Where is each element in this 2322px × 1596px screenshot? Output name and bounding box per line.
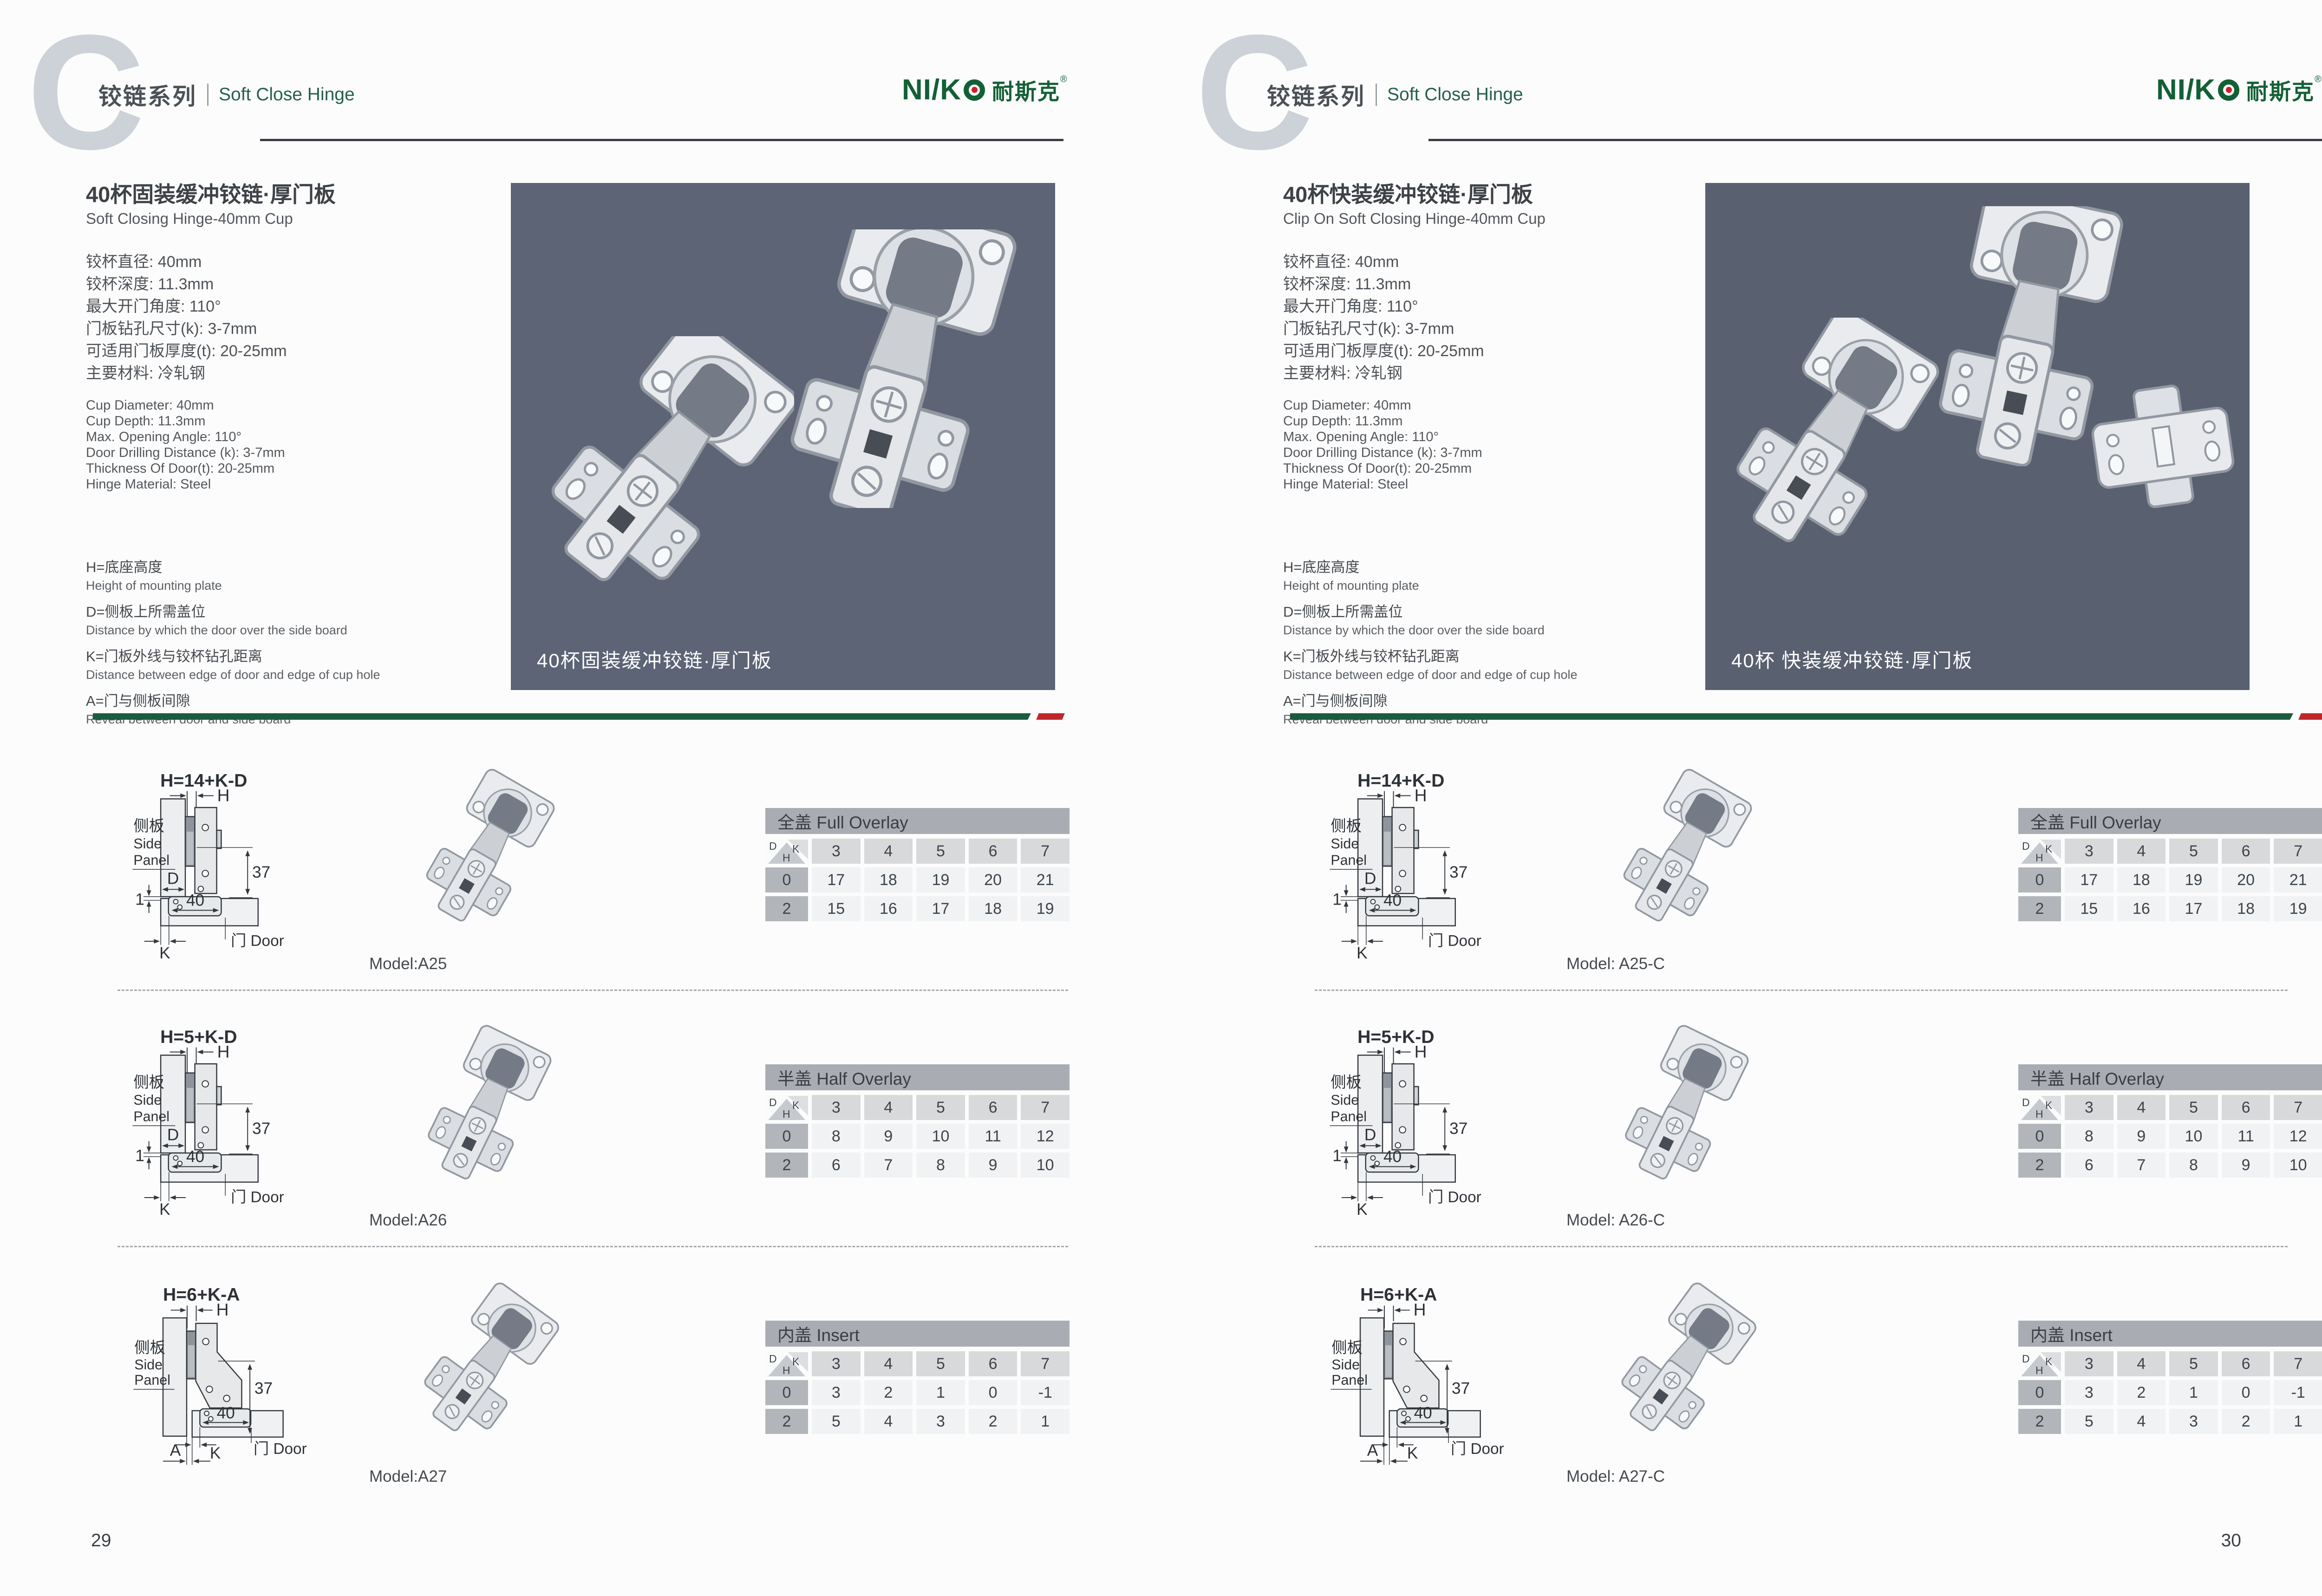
brand-o-icon xyxy=(2218,79,2239,101)
spec-list-en: Cup Diameter: 40mmCup Depth: 11.3mmMax. … xyxy=(86,397,285,492)
brand-logo-latin: NI/K xyxy=(902,73,961,106)
technical-diagram-insert: H=6+K-AH侧板SidePanel4037KA门 Door xyxy=(1313,1276,1541,1476)
table-title: 全盖 Full Overlay xyxy=(2018,808,2322,834)
table-corner-cell: D K H xyxy=(765,1351,808,1376)
svg-text:侧板: 侧板 xyxy=(133,1074,164,1091)
brand-logo-cn: 耐斯克 xyxy=(992,74,1060,106)
product-photo-art xyxy=(1705,183,2250,690)
k-value-header: 5 xyxy=(916,839,965,864)
hinge-illustration xyxy=(382,1012,591,1207)
hinge-section-diagram: H=5+K-DH侧板SidePanel37D140K门 Door xyxy=(116,1019,344,1219)
overlay-value-cell: 18 xyxy=(864,867,913,892)
spec-list-cn: 铰杯直径: 40mm铰杯深度: 11.3mm最大开门角度: 110°门板钻孔尺寸… xyxy=(1283,251,1484,384)
overlay-value-cell: 8 xyxy=(2065,1124,2113,1149)
svg-text:37: 37 xyxy=(1449,863,1468,881)
svg-text:D: D xyxy=(2022,1353,2030,1365)
legend-term: D=侧板上所需盖位 xyxy=(1283,600,1577,621)
svg-text:侧板: 侧板 xyxy=(1331,818,1362,835)
overlay-value-cell: 1 xyxy=(916,1380,965,1405)
table-grid: D K H 345670171819202121516171819 xyxy=(765,839,1070,921)
svg-text:D: D xyxy=(769,840,777,852)
product-photo-panel: 40杯固装缓冲铰链·厚门板 xyxy=(511,183,1055,690)
overlay-value-cell: 6 xyxy=(2065,1153,2113,1178)
overlay-value-cell: 0 xyxy=(2222,1380,2270,1405)
spec-line: Cup Diameter: 40mm xyxy=(86,397,285,413)
k-value-header: 3 xyxy=(2065,1351,2113,1376)
overlay-value-cell: 15 xyxy=(2065,896,2113,921)
technical-diagram-full-overlay: H=14+K-DH侧板SidePanel37D140K门 Door xyxy=(116,763,344,963)
spec-line: 最大开门角度: 110° xyxy=(86,295,287,318)
svg-text:H: H xyxy=(217,1042,230,1061)
svg-text:H: H xyxy=(783,1364,790,1376)
k-value-header: 4 xyxy=(2117,1351,2166,1376)
corner-diagonal-icon: D K H xyxy=(2018,839,2061,864)
series-title-en: Soft Close Hinge xyxy=(219,85,355,105)
svg-text:Side: Side xyxy=(1331,836,1359,852)
h-value-header: 0 xyxy=(765,1124,808,1149)
table-corner-cell: D K H xyxy=(2018,1351,2061,1376)
registered-mark: ® xyxy=(1060,74,1067,85)
overlay-value-cell: -1 xyxy=(1021,1380,1070,1405)
table-title: 半盖 Half Overlay xyxy=(2018,1064,2322,1090)
overlay-value-cell: 6 xyxy=(812,1153,861,1178)
k-value-header: 6 xyxy=(969,1351,1018,1376)
product-title-en: Soft Closing Hinge-40mm Cup xyxy=(86,210,293,228)
svg-text:Panel: Panel xyxy=(133,1109,170,1124)
overlay-value-cell: 3 xyxy=(916,1409,965,1434)
svg-text:侧板: 侧板 xyxy=(1331,1074,1362,1091)
table-corner-cell: D K H xyxy=(765,1095,808,1120)
h-value-header: 2 xyxy=(765,1153,808,1178)
svg-text:D: D xyxy=(167,1126,179,1144)
overlay-value-cell: 7 xyxy=(864,1153,913,1178)
h-value-header: 0 xyxy=(765,867,808,892)
spec-line: 铰杯直径: 40mm xyxy=(1283,251,1484,273)
overlay-value-cell: 17 xyxy=(2065,867,2113,892)
technical-diagram-insert: H=6+K-AH侧板SidePanel4037KA门 Door xyxy=(116,1276,344,1476)
k-value-header: 3 xyxy=(2065,1095,2113,1120)
brand-dot-icon xyxy=(972,87,978,93)
hinge-product-photo xyxy=(382,756,591,951)
legend-desc: Distance by which the door over the side… xyxy=(1283,623,1577,638)
hinge-illustration xyxy=(1579,1269,1788,1464)
header-rule xyxy=(260,139,1063,141)
product-photo-panel: 40杯 快装缓冲铰链·厚门板 xyxy=(1705,183,2250,690)
model-label: Model:A27 xyxy=(369,1467,447,1486)
svg-text:37: 37 xyxy=(252,863,270,881)
svg-text:侧板: 侧板 xyxy=(1331,1340,1363,1357)
overlay-value-cell: 2 xyxy=(864,1380,913,1405)
k-value-header: 5 xyxy=(916,1351,965,1376)
table-title: 内盖 Insert xyxy=(2018,1321,2322,1347)
half-overlay-table: 半盖 Half Overlay D K H 345670891011122678… xyxy=(2018,1064,2322,1178)
series-divider xyxy=(1376,84,1377,106)
table-corner-cell: D K H xyxy=(2018,1095,2061,1120)
svg-text:Panel: Panel xyxy=(133,853,170,868)
hinge-product-photo xyxy=(382,1012,591,1207)
overlay-value-cell: 18 xyxy=(2222,896,2270,921)
table-grid: D K H 3456703210-1254321 xyxy=(765,1351,1070,1434)
overlay-value-cell: 9 xyxy=(2222,1153,2270,1178)
svg-text:D: D xyxy=(769,1353,777,1365)
svg-text:门 Door: 门 Door xyxy=(231,932,284,950)
overlay-value-cell: 9 xyxy=(2117,1124,2166,1149)
spec-line: Max. Opening Angle: 110° xyxy=(1283,429,1482,445)
spec-line: Door Drilling Distance (k): 3-7mm xyxy=(1283,445,1482,461)
separator-green-bar xyxy=(93,713,1031,720)
h-value-header: 2 xyxy=(765,896,808,921)
overlay-value-cell: 7 xyxy=(2117,1153,2166,1178)
hinge-illustration xyxy=(1579,756,1788,951)
hinge-product-photo xyxy=(382,1269,591,1464)
spec-line: Thickness Of Door(t): 20-25mm xyxy=(86,461,285,476)
brand-logo: NI/K 耐斯克 ® xyxy=(902,73,1067,106)
svg-text:A: A xyxy=(170,1441,181,1459)
series-header: 铰链系列 Soft Close Hinge xyxy=(1267,78,1523,111)
series-title-en: Soft Close Hinge xyxy=(1387,85,1523,105)
overlay-value-cell: 12 xyxy=(1021,1124,1070,1149)
svg-text:K: K xyxy=(1407,1444,1418,1462)
k-value-header: 7 xyxy=(2274,1351,2322,1376)
overlay-value-cell: 2 xyxy=(2117,1380,2166,1405)
spec-line: 门板钻孔尺寸(k): 3-7mm xyxy=(86,318,287,340)
spec-line: Door Drilling Distance (k): 3-7mm xyxy=(86,445,285,461)
svg-text:1: 1 xyxy=(135,891,144,909)
overlay-value-cell: 10 xyxy=(2274,1153,2322,1178)
k-value-header: 5 xyxy=(2169,839,2218,864)
svg-text:K: K xyxy=(1357,944,1368,962)
svg-text:K: K xyxy=(1357,1200,1368,1218)
hinge-section-diagram: H=6+K-AH侧板SidePanel4037KA门 Door xyxy=(1313,1276,1541,1476)
overlay-value-cell: 3 xyxy=(2169,1409,2218,1434)
overlay-value-cell: 11 xyxy=(2222,1124,2270,1149)
spec-line: 主要材料: 冷轧钢 xyxy=(86,362,287,384)
legend-term: A=门与侧板间隙 xyxy=(86,689,380,710)
k-value-header: 5 xyxy=(2169,1351,2218,1376)
overlay-value-cell: 16 xyxy=(2117,896,2166,921)
registered-mark: ® xyxy=(2315,74,2322,85)
svg-text:40: 40 xyxy=(1414,1404,1432,1422)
model-label: Model: A25-C xyxy=(1566,955,1665,973)
svg-text:H=14+K-D: H=14+K-D xyxy=(1357,771,1444,791)
separator-green-bar xyxy=(1290,713,2293,720)
product-photo-art xyxy=(511,183,1055,690)
legend-term: H=底座高度 xyxy=(1283,555,1577,576)
svg-text:Panel: Panel xyxy=(1331,1109,1367,1124)
overlay-value-cell: 2 xyxy=(969,1409,1018,1434)
spec-line: Hinge Material: Steel xyxy=(1283,476,1482,492)
catalog-page-30: C 铰链系列 Soft Close Hinge NI/K 耐斯克 ® 40杯快装… xyxy=(1168,0,2322,1596)
k-value-header: 3 xyxy=(812,1095,861,1120)
svg-text:37: 37 xyxy=(1449,1120,1468,1138)
table-corner-cell: D K H xyxy=(2018,839,2061,864)
overlay-value-cell: 17 xyxy=(812,867,861,892)
legend-desc: Distance between edge of door and edge o… xyxy=(86,668,380,682)
svg-text:1: 1 xyxy=(1332,891,1342,909)
k-value-header: 6 xyxy=(969,1095,1018,1120)
k-value-header: 7 xyxy=(2274,1095,2322,1120)
row-divider xyxy=(1315,990,2288,991)
brand-o-icon xyxy=(964,79,985,101)
k-value-header: 7 xyxy=(1021,839,1070,864)
svg-text:37: 37 xyxy=(254,1380,273,1398)
spec-line: 铰杯深度: 11.3mm xyxy=(86,273,287,295)
hinge-section-diagram: H=5+K-DH侧板SidePanel37D140K门 Door xyxy=(1313,1019,1541,1219)
overlay-value-cell: 4 xyxy=(864,1409,913,1434)
brand-logo: NI/K 耐斯克 ® xyxy=(2156,73,2322,106)
svg-text:门 Door: 门 Door xyxy=(1451,1440,1504,1458)
page-number: 29 xyxy=(91,1531,111,1551)
spec-line: Cup Diameter: 40mm xyxy=(1283,397,1482,413)
h-value-header: 0 xyxy=(2018,1124,2061,1149)
svg-text:D: D xyxy=(1364,870,1376,888)
svg-text:Panel: Panel xyxy=(1331,1373,1368,1388)
k-value-header: 3 xyxy=(2065,839,2113,864)
spec-line: Hinge Material: Steel xyxy=(86,476,285,492)
legend-desc: Distance by which the door over the side… xyxy=(86,623,380,638)
table-title: 内盖 Insert xyxy=(765,1321,1070,1347)
spec-line: 铰杯深度: 11.3mm xyxy=(1283,273,1484,295)
corner-diagonal-icon: D K H xyxy=(2018,1351,2061,1376)
spec-line: Cup Depth: 11.3mm xyxy=(1283,413,1482,429)
k-value-header: 3 xyxy=(812,839,861,864)
model-label: Model:A25 xyxy=(369,955,447,973)
svg-text:40: 40 xyxy=(1383,892,1402,910)
insert-table: 内盖 Insert D K H 3456703210-1254321 xyxy=(765,1321,1070,1434)
k-value-header: 4 xyxy=(864,1351,913,1376)
overlay-value-cell: 19 xyxy=(1021,896,1070,921)
technical-diagram-half-overlay: H=5+K-DH侧板SidePanel37D140K门 Door xyxy=(1313,1019,1541,1219)
k-value-header: 5 xyxy=(2169,1095,2218,1120)
overlay-value-cell: 0 xyxy=(969,1380,1018,1405)
brand-dot-icon xyxy=(2226,87,2232,93)
h-value-header: 0 xyxy=(765,1380,808,1405)
half-overlay-table: 半盖 Half Overlay D K H 345670891011122678… xyxy=(765,1064,1070,1178)
svg-text:K: K xyxy=(792,1099,800,1111)
svg-text:K: K xyxy=(2045,1099,2053,1111)
legend-term: D=侧板上所需盖位 xyxy=(86,600,380,621)
svg-text:门 Door: 门 Door xyxy=(1428,932,1481,950)
overlay-value-cell: -1 xyxy=(2274,1380,2322,1405)
svg-text:1: 1 xyxy=(1332,1147,1342,1165)
technical-diagram-half-overlay: H=5+K-DH侧板SidePanel37D140K门 Door xyxy=(116,1019,344,1219)
svg-text:H: H xyxy=(2035,1364,2043,1376)
product-title-cn: 40杯快装缓冲铰链·厚门板 xyxy=(1283,176,1533,208)
overlay-value-cell: 4 xyxy=(2117,1409,2166,1434)
legend-term: K=门板外线与铰杯钻孔距离 xyxy=(1283,645,1577,665)
overlay-value-cell: 9 xyxy=(969,1153,1018,1178)
hinge-section-diagram: H=14+K-DH侧板SidePanel37D140K门 Door xyxy=(1313,763,1541,963)
photo-caption: 40杯固装缓冲铰链·厚门板 xyxy=(537,645,772,673)
svg-text:D: D xyxy=(2022,1096,2030,1108)
soft-close-hinge-photo xyxy=(534,336,794,596)
svg-text:H=14+K-D: H=14+K-D xyxy=(160,771,247,791)
header-rule xyxy=(1428,139,2322,141)
svg-text:K: K xyxy=(792,1355,800,1368)
overlay-value-cell: 10 xyxy=(2169,1124,2218,1149)
legend-desc: Height of mounting plate xyxy=(1283,579,1577,593)
spec-line: 最大开门角度: 110° xyxy=(1283,295,1484,318)
k-value-header: 4 xyxy=(2117,839,2166,864)
svg-text:H: H xyxy=(1415,1042,1427,1061)
svg-text:K: K xyxy=(159,1200,170,1218)
svg-text:侧板: 侧板 xyxy=(134,1340,165,1357)
k-value-header: 6 xyxy=(2222,1095,2270,1120)
svg-text:Side: Side xyxy=(1331,1357,1360,1373)
svg-text:K: K xyxy=(2045,843,2053,855)
overlay-value-cell: 20 xyxy=(2222,867,2270,892)
svg-text:1: 1 xyxy=(135,1147,144,1165)
full-overlay-table: 全盖 Full Overlay D K H 345670171819202121… xyxy=(765,808,1070,921)
spec-line: 门板钻孔尺寸(k): 3-7mm xyxy=(1283,318,1484,340)
hinge-product-photo xyxy=(1579,1269,1788,1464)
h-value-header: 2 xyxy=(2018,1153,2061,1178)
overlay-value-cell: 1 xyxy=(1021,1409,1070,1434)
spec-list-en: Cup Diameter: 40mmCup Depth: 11.3mmMax. … xyxy=(1283,397,1482,492)
overlay-value-cell: 16 xyxy=(864,896,913,921)
page-number: 30 xyxy=(2221,1531,2241,1551)
hinge-section-diagram: H=14+K-DH侧板SidePanel37D140K门 Door xyxy=(116,763,344,963)
svg-text:40: 40 xyxy=(1383,1148,1402,1166)
spec-line: 主要材料: 冷轧钢 xyxy=(1283,362,1484,384)
separator-red-bar xyxy=(2298,713,2322,720)
svg-text:门 Door: 门 Door xyxy=(254,1440,307,1458)
k-value-header: 6 xyxy=(2222,1351,2270,1376)
svg-text:37: 37 xyxy=(252,1120,270,1138)
overlay-value-cell: 12 xyxy=(2274,1124,2322,1149)
hinge-section-diagram: H=6+K-AH侧板SidePanel4037KA门 Door xyxy=(116,1276,344,1476)
row-divider xyxy=(117,990,1068,991)
corner-diagonal-icon: D K H xyxy=(2018,1095,2061,1120)
hinge-product-photo xyxy=(1579,756,1788,951)
overlay-value-cell: 11 xyxy=(969,1124,1018,1149)
k-value-header: 6 xyxy=(2222,839,2270,864)
product-title-en: Clip On Soft Closing Hinge-40mm Cup xyxy=(1283,210,1546,228)
svg-text:K: K xyxy=(792,843,800,855)
svg-text:H: H xyxy=(1414,1300,1426,1319)
svg-text:门 Door: 门 Door xyxy=(1428,1189,1481,1206)
k-value-header: 4 xyxy=(864,839,913,864)
insert-table: 内盖 Insert D K H 3456703210-1254321 xyxy=(2018,1321,2322,1434)
svg-text:H: H xyxy=(2035,852,2043,864)
h-value-header: 2 xyxy=(765,1409,808,1434)
corner-diagonal-icon: D K H xyxy=(765,1095,808,1120)
svg-text:D: D xyxy=(1364,1126,1376,1144)
catalog-spread: C 铰链系列 Soft Close Hinge NI/K 耐斯克 ® 40杯固装… xyxy=(0,0,2322,1596)
svg-text:Side: Side xyxy=(133,1093,162,1108)
spec-line: 可适用门板厚度(t): 20-25mm xyxy=(86,340,287,362)
overlay-value-cell: 17 xyxy=(2169,896,2218,921)
svg-text:H: H xyxy=(783,1108,790,1120)
series-divider xyxy=(207,84,209,106)
full-overlay-table: 全盖 Full Overlay D K H 345670171819202121… xyxy=(2018,808,2322,921)
h-value-header: 0 xyxy=(2018,867,2061,892)
svg-text:K: K xyxy=(159,944,170,962)
overlay-value-cell: 19 xyxy=(2169,867,2218,892)
k-value-header: 7 xyxy=(2274,839,2322,864)
hinge-illustration xyxy=(382,1269,591,1464)
hinge-illustration xyxy=(534,336,794,596)
spec-line: Thickness Of Door(t): 20-25mm xyxy=(1283,461,1482,476)
k-value-header: 6 xyxy=(969,839,1018,864)
section-separator xyxy=(93,713,1063,720)
h-value-header: 0 xyxy=(2018,1380,2061,1405)
corner-diagonal-icon: D K H xyxy=(765,839,808,864)
legend-desc: Distance between edge of door and edge o… xyxy=(1283,668,1577,682)
svg-text:Side: Side xyxy=(133,836,162,852)
overlay-value-cell: 9 xyxy=(864,1124,913,1149)
spec-list-cn: 铰杯直径: 40mm铰杯深度: 11.3mm最大开门角度: 110°门板钻孔尺寸… xyxy=(86,251,287,384)
row-divider xyxy=(117,1246,1068,1247)
legend-term: A=门与侧板间隙 xyxy=(1283,689,1577,710)
legend-desc: Height of mounting plate xyxy=(86,579,380,593)
table-grid: D K H 3456703210-1254321 xyxy=(2018,1351,2322,1434)
svg-text:D: D xyxy=(167,870,179,888)
h-value-header: 2 xyxy=(2018,896,2061,921)
svg-text:Panel: Panel xyxy=(1331,853,1367,868)
svg-text:H: H xyxy=(216,1300,229,1319)
svg-text:H: H xyxy=(2035,1108,2043,1120)
overlay-value-cell: 8 xyxy=(2169,1153,2218,1178)
overlay-value-cell: 19 xyxy=(916,867,965,892)
overlay-value-cell: 21 xyxy=(1021,867,1070,892)
product-title-cn: 40杯固装缓冲铰链·厚门板 xyxy=(86,176,336,208)
svg-text:H: H xyxy=(217,785,230,805)
overlay-value-cell: 5 xyxy=(2065,1409,2113,1434)
table-grid: D K H 345670171819202121516171819 xyxy=(2018,839,2322,921)
overlay-value-cell: 21 xyxy=(2274,867,2322,892)
corner-diagonal-icon: D K H xyxy=(765,1351,808,1376)
k-value-header: 4 xyxy=(864,1095,913,1120)
overlay-value-cell: 3 xyxy=(812,1380,861,1405)
hinge-product-photo xyxy=(1579,1012,1788,1207)
model-label: Model: A27-C xyxy=(1566,1467,1665,1486)
overlay-value-cell: 3 xyxy=(2065,1380,2113,1405)
hinge-illustration xyxy=(762,229,1040,508)
svg-text:37: 37 xyxy=(1452,1380,1470,1398)
spec-line: 可适用门板厚度(t): 20-25mm xyxy=(1283,340,1484,362)
hinge-illustration xyxy=(382,756,591,951)
svg-text:D: D xyxy=(2022,840,2030,852)
section-separator xyxy=(1290,713,2322,720)
svg-text:Panel: Panel xyxy=(134,1373,170,1388)
model-label: Model: A26-C xyxy=(1566,1211,1665,1230)
overlay-value-cell: 1 xyxy=(2274,1409,2322,1434)
k-value-header: 4 xyxy=(2117,1095,2166,1120)
model-label: Model:A26 xyxy=(369,1211,447,1230)
legend-term: K=门板外线与铰杯钻孔距离 xyxy=(86,645,380,665)
overlay-value-cell: 5 xyxy=(812,1409,861,1434)
svg-text:K: K xyxy=(210,1444,221,1462)
table-title: 全盖 Full Overlay xyxy=(765,808,1070,834)
svg-text:H: H xyxy=(1415,785,1427,805)
overlay-value-cell: 1 xyxy=(2169,1380,2218,1405)
legend-term: H=底座高度 xyxy=(86,555,380,576)
svg-text:Side: Side xyxy=(134,1357,163,1373)
overlay-value-cell: 8 xyxy=(916,1153,965,1178)
table-title: 半盖 Half Overlay xyxy=(765,1064,1070,1090)
svg-text:H: H xyxy=(783,852,790,864)
soft-close-hinge-photo xyxy=(762,229,1040,508)
overlay-value-cell: 20 xyxy=(969,867,1018,892)
k-value-header: 7 xyxy=(1021,1095,1070,1120)
overlay-value-cell: 2 xyxy=(2222,1409,2270,1434)
hinge-illustration xyxy=(1579,1012,1788,1207)
svg-text:40: 40 xyxy=(186,892,204,910)
table-grid: D K H 345670891011122678910 xyxy=(765,1095,1070,1178)
svg-text:侧板: 侧板 xyxy=(133,818,164,835)
overlay-value-cell: 18 xyxy=(2117,867,2166,892)
